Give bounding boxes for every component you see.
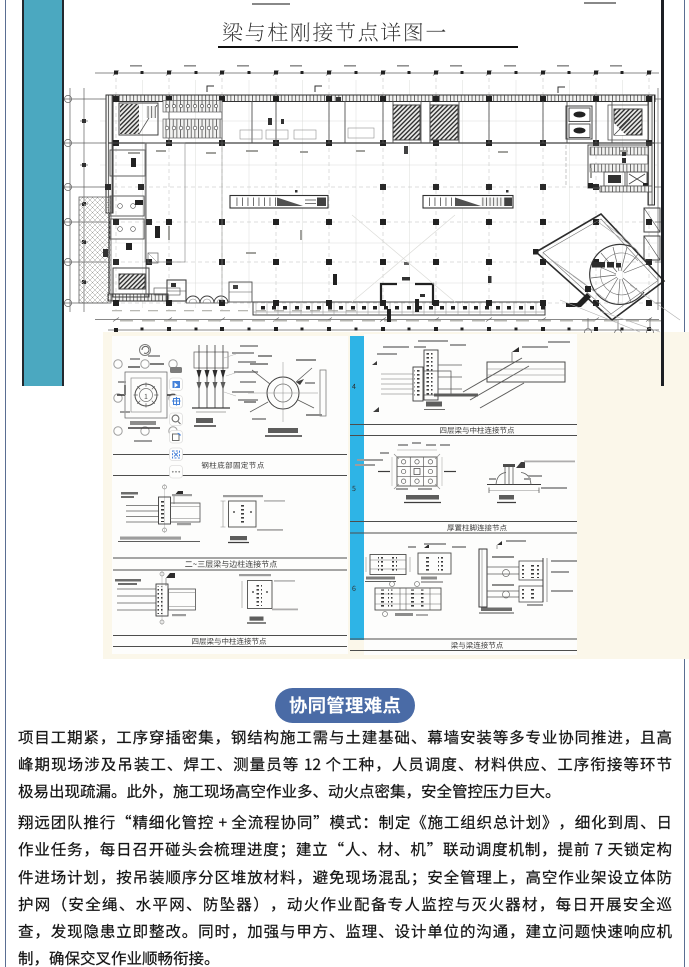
svg-text:钢柱底部固定节点: 钢柱底部固定节点 xyxy=(201,460,264,471)
svg-text:6: 6 xyxy=(352,584,356,594)
svg-text:二~三层梁与边柱连接节点: 二~三层梁与边柱连接节点 xyxy=(185,559,277,570)
svg-text:1: 1 xyxy=(144,392,148,402)
svg-text:梁与梁连接节点: 梁与梁连接节点 xyxy=(451,640,504,651)
svg-text:四层梁与中柱连接节点: 四层梁与中柱连接节点 xyxy=(192,636,267,647)
svg-text:四层梁与中柱连接节点: 四层梁与中柱连接节点 xyxy=(440,425,515,436)
svg-text:4: 4 xyxy=(352,382,356,392)
svg-text:厚置柱脚连接节点: 厚置柱脚连接节点 xyxy=(447,523,507,534)
svg-text:5: 5 xyxy=(352,484,356,494)
